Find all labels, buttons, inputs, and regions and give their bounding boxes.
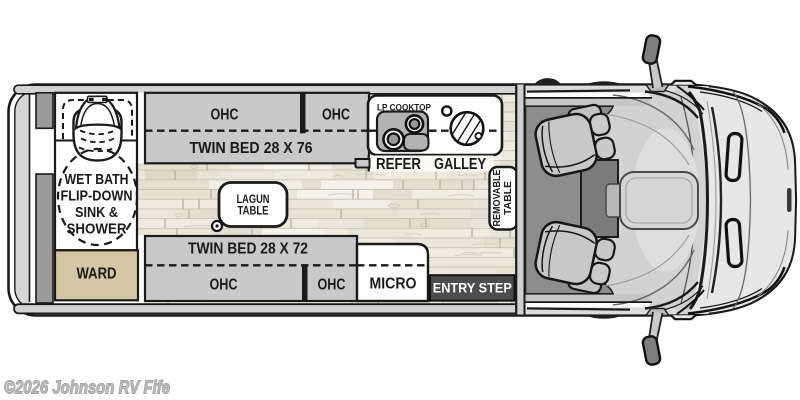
svg-text:SINK &: SINK & [75, 204, 118, 221]
svg-text:WET BATH: WET BATH [65, 171, 129, 188]
svg-text:TABLE: TABLE [502, 181, 514, 215]
svg-text:TABLE: TABLE [238, 205, 269, 217]
svg-text:ENTRY STEP: ENTRY STEP [433, 280, 512, 295]
svg-text:SHOWER: SHOWER [67, 221, 127, 238]
svg-text:OHC: OHC [211, 106, 239, 123]
svg-text:TWIN BED 28 X 76: TWIN BED 28 X 76 [190, 140, 313, 157]
svg-text:TWIN BED 28 X 72: TWIN BED 28 X 72 [188, 240, 308, 257]
svg-text:GALLEY: GALLEY [434, 156, 486, 173]
svg-text:OHC: OHC [210, 276, 238, 293]
svg-text:©2026 Johnson RV Fife: ©2026 Johnson RV Fife [4, 377, 170, 398]
svg-text:WARD: WARD [77, 266, 117, 283]
svg-text:REFER: REFER [376, 156, 421, 173]
svg-text:FLIP-DOWN: FLIP-DOWN [61, 188, 133, 205]
svg-text:OHC: OHC [322, 106, 350, 123]
svg-text:LAGUN: LAGUN [237, 194, 270, 206]
svg-text:MICRO: MICRO [370, 276, 417, 293]
svg-text:OHC: OHC [318, 276, 346, 293]
